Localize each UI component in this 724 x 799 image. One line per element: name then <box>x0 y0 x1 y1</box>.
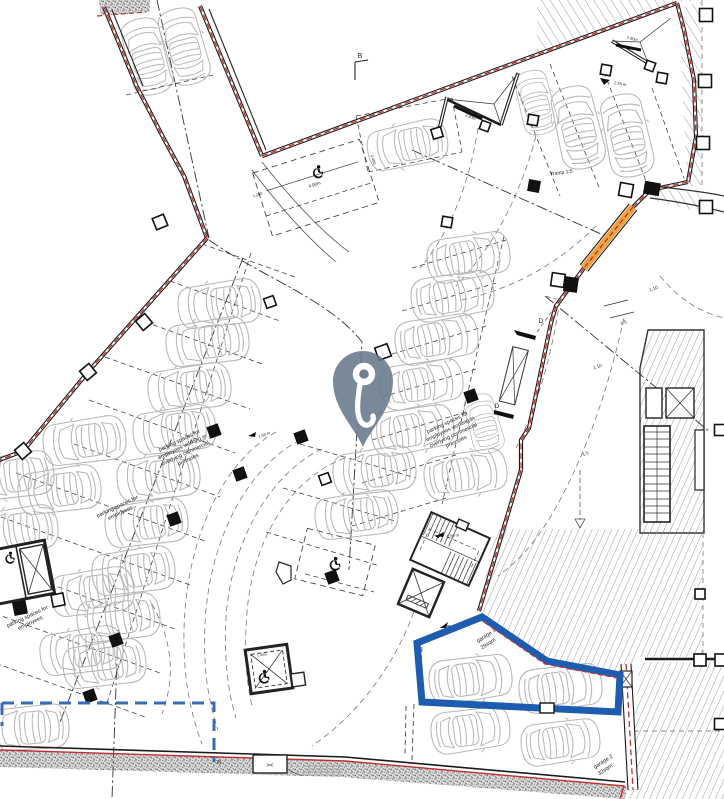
svg-text:IN: IN <box>217 760 222 766</box>
svg-text:B: B <box>358 53 363 60</box>
svg-text:D: D <box>495 403 500 410</box>
svg-text:><: >< <box>266 763 274 769</box>
